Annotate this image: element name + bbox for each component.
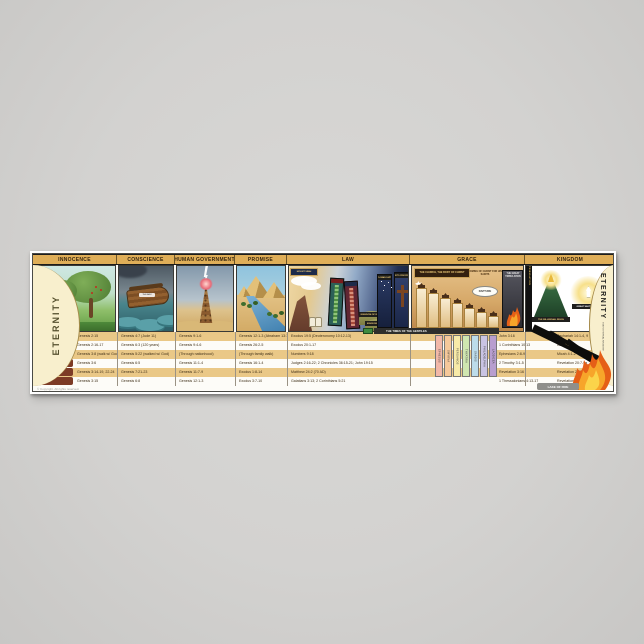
church-age-name: LAODICEA — [492, 349, 495, 364]
church-age-step — [488, 316, 499, 328]
eternity-left-text: ETERNITY — [51, 295, 61, 356]
church-age-name: EPHESUS — [438, 349, 441, 363]
church-age-name: PHILADELPHIA — [483, 346, 486, 367]
church-age-bar: EPHESUS — [435, 335, 443, 377]
header-conscience: CONSCIENCE — [117, 255, 175, 264]
cross-icon — [397, 290, 408, 293]
storm-cloud-icon — [118, 265, 147, 278]
header-grace: GRACE — [410, 255, 525, 264]
ark-label: THE ARK — [139, 293, 155, 297]
wave-icon — [157, 315, 174, 325]
ref-cell: Genesis 6:5 — [121, 359, 175, 368]
church-age-bar: PERGAMOS — [453, 335, 461, 377]
ref-cell: Genesis 3:6 — [77, 359, 117, 368]
header-innocence: INNOCENCE — [33, 255, 117, 264]
table-row: RECKONING Genesis 3:14-19, 22-24 Genesis… — [33, 368, 614, 377]
column-divider — [525, 332, 526, 386]
panel-header — [345, 282, 357, 287]
church-age-bar: PHILADELPHIA — [480, 335, 488, 377]
coming-of-christ-text: COMING OF CHRIST FOR HIS SAINTS — [468, 270, 502, 276]
ref-cell: Genesis 7:21-23 — [121, 368, 175, 377]
ark-label-text: THE ARK — [142, 294, 151, 297]
ref-cell: Genesis 9:1-6 — [179, 332, 235, 341]
scene-church-age: THE CHURCH, THE BODY OF CHRIST — [411, 265, 524, 332]
scene-noahs-ark: THE ARK — [118, 265, 174, 332]
ref-cell: Genesis 5:22 (walked w/ God) — [121, 350, 175, 359]
header-label: KINGDOM — [557, 257, 583, 263]
header-law: LAW — [287, 255, 410, 264]
church-building-icon — [442, 295, 449, 298]
tribulation-strip-text: TRIBULATION — [528, 266, 530, 285]
times-of-gentiles-bar: THE TIMES OF THE GENTILES — [374, 328, 499, 334]
ref-cell: Numbers 9:18 — [291, 350, 409, 359]
ref-cell: 2 Timothy 3:1-5 — [499, 359, 555, 368]
ref-cell: Exodus 20:1-17 — [291, 341, 409, 350]
millennial-reign-text: THE MILLENNIAL REIGN — [538, 319, 564, 321]
palm-trees-icon — [241, 302, 246, 306]
ref-cell: Matthew 24:2 (70 AD) — [291, 368, 409, 377]
ref-cell: Genesis 12:1-3 — [179, 377, 235, 386]
header-human-government: HUMAN GOVERNMENT — [175, 255, 235, 264]
stone-tablet-icon — [315, 317, 322, 327]
church-building-icon — [490, 313, 497, 316]
ref-cell: Genesis 11:7-9 — [179, 368, 235, 377]
church-banner-text: THE CHURCH, THE BODY OF CHRIST — [420, 271, 465, 274]
tribulation-strip: TRIBULATION — [526, 266, 532, 332]
rapture-label: RAPTURE — [472, 286, 498, 297]
church-age-step — [440, 298, 451, 328]
church-age-step — [428, 293, 439, 328]
column-divider — [117, 332, 118, 386]
ref-cell: Revelation 3:16 — [499, 368, 555, 377]
column-divider — [410, 332, 411, 386]
mount-sinai-label: MOUNT SINAI — [290, 268, 318, 276]
kings-column-icon — [333, 285, 339, 323]
ref-cell: Genesis 3:14-19, 22-24 — [77, 368, 117, 377]
captivity-label-text: BABYLONIAN CAPTIVITY — [378, 277, 391, 279]
header-label: CONSCIENCE — [127, 257, 163, 263]
church-age-name: THYATIRA — [465, 349, 468, 363]
table-row: RESTRICTION Genesis 2:16-17 Genesis 6:3 … — [33, 341, 614, 350]
church-age-name: PERGAMOS — [456, 348, 459, 365]
church-building-icon — [454, 300, 461, 303]
ref-cell: Exodus 3:7-10 — [239, 377, 287, 386]
timeline-marker — [363, 328, 373, 334]
scene-egypt-pyramids — [236, 265, 286, 332]
crucifixion-label-text: CHRIST'S CRUCIFIXION — [395, 275, 408, 277]
church-building-icon — [418, 285, 425, 288]
eternity-right-text: ETERNITY — [599, 273, 606, 320]
ref-cell: Judges 2:16-22; 2 Chronicles 36:15-21; J… — [291, 359, 409, 368]
column-divider — [235, 332, 236, 386]
cloud-icon — [301, 282, 321, 290]
ref-cell: Genesis 12:1-3 (Abraham 13:14-17) — [239, 332, 287, 341]
ref-cell: Genesis 4:7 (Jude 11) — [121, 332, 175, 341]
table-row: REMEDY Genesis 3:15 Genesis 6:8 Genesis … — [33, 377, 614, 386]
header-label: HUMAN GOVERNMENT — [175, 257, 235, 263]
ref-cell: Genesis 16:1-4 — [239, 359, 287, 368]
column-divider — [175, 332, 176, 386]
kings-of-judah-panel — [344, 281, 360, 330]
babylonian-captivity-panel: BABYLONIAN CAPTIVITY — [377, 274, 392, 328]
ref-cell: Genesis 2:16-17 — [77, 341, 117, 350]
ref-cell: Ephesians 2:8-9 — [499, 350, 555, 359]
dispensations-poster[interactable]: INNOCENCE CONSCIENCE HUMAN GOVERNMENT PR… — [30, 251, 616, 394]
church-age-bar: THYATIRA — [462, 335, 470, 377]
church-steeple-icon — [480, 307, 483, 309]
scene-law-era: MOUNT SINAI KINGDOM OF ISRAEL KINGDOM OF… — [288, 265, 409, 332]
ref-cell: 1 Corinthians 10:13 — [499, 341, 555, 350]
tribulation-label: THE GREAT TRIBULATION — [504, 273, 522, 279]
pyramid-icon — [263, 282, 285, 298]
header-promise: PROMISE — [235, 255, 287, 264]
mount-sinai-label-text: MOUNT SINAI — [297, 271, 311, 273]
church-age-step — [452, 303, 463, 328]
scene-tower-of-babel — [176, 265, 234, 332]
ref-cell: Genesis 2:15 — [77, 332, 117, 341]
copyright-text: © Copyright. All rights reserved. — [37, 387, 79, 391]
ref-cell: Exodus 1:8-14 — [239, 368, 287, 377]
ref-cell: Genesis 6:3 (120 years) — [121, 341, 175, 350]
church-banner: THE CHURCH, THE BODY OF CHRIST — [414, 268, 470, 278]
lake-of-fire-text: LAKE OF FIRE — [548, 385, 569, 389]
coming-text: COMING OF CHRIST FOR HIS SAINTS — [468, 270, 502, 276]
tribulation-text: THE GREAT TRIBULATION — [505, 273, 520, 278]
cross-icon — [401, 285, 404, 307]
ref-cell: Genesis 26:2-5 — [239, 341, 287, 350]
crucifixion-panel: CHRIST'S CRUCIFIXION — [394, 272, 409, 328]
ref-cell: Genesis 9:4-6 — [179, 341, 235, 350]
flames-icon — [505, 302, 522, 326]
church-building-icon — [478, 309, 485, 312]
ref-cell: Galatians 3:13; 2 Corinthians 5:21 — [291, 377, 409, 386]
ref-cell: Genesis 11:1-4 — [179, 359, 235, 368]
table-row: RESPONSIBILITY Genesis 2:15 Genesis 4:7 … — [33, 332, 614, 341]
table-row: RUIN (FAILURE) Genesis 3:6 Genesis 6:5 G… — [33, 359, 614, 368]
page-background: INNOCENCE CONSCIENCE HUMAN GOVERNMENT PR… — [0, 0, 644, 644]
ref-cell: Genesis 3:15 — [77, 377, 117, 386]
header-kingdom: KINGDOM — [525, 255, 614, 264]
church-age-step — [416, 288, 427, 328]
church-steeple-icon — [492, 311, 495, 313]
ref-cell: Genesis 3:8 (walk w/ God) — [77, 350, 117, 359]
rapture-text: RAPTURE — [479, 290, 492, 293]
column-divider — [287, 332, 288, 386]
header-label: PROMISE — [248, 257, 273, 263]
kings-of-israel-panel — [328, 278, 344, 327]
lake-of-fire-label: LAKE OF FIRE — [537, 383, 579, 390]
church-steeple-icon — [432, 288, 435, 290]
church-age-bar: SMYRNA — [444, 335, 452, 377]
millennial-reign-label: THE MILLENNIAL REIGN — [532, 317, 570, 322]
explosion-icon — [199, 278, 213, 290]
church-age-step — [476, 312, 487, 328]
stars-icon — [381, 281, 382, 282]
church-steeple-icon — [444, 293, 447, 295]
church-building-icon — [466, 305, 473, 308]
ref-cell: (Through family walk) — [239, 350, 287, 359]
church-ages-group: EPHESUS SMYRNA PERGAMOS THYATIRA SARDIS … — [435, 335, 499, 377]
church-building-icon — [430, 290, 437, 293]
church-steeple-icon — [468, 303, 471, 305]
crucifixion-label: CHRIST'S CRUCIFIXION — [395, 273, 408, 278]
church-steeple-icon — [456, 298, 459, 300]
palm-trees-icon — [267, 312, 272, 316]
table-row: RELATIONSHIP Genesis 3:8 (walk w/ God) G… — [33, 350, 614, 359]
captivity-label: BABYLONIAN CAPTIVITY — [378, 275, 391, 280]
header-label: LAW — [342, 257, 354, 263]
timeline-chart: INNOCENCE CONSCIENCE HUMAN GOVERNMENT PR… — [32, 253, 614, 392]
header-label: GRACE — [457, 257, 477, 263]
times-of-gentiles-text: THE TIMES OF THE GENTILES — [386, 329, 427, 333]
tribulation-panel: THE GREAT TRIBULATION — [502, 270, 523, 328]
tree-trunk-icon — [89, 298, 93, 318]
panel-header — [331, 279, 343, 284]
fruit-icon — [95, 286, 97, 288]
church-age-step — [464, 308, 475, 328]
ref-cell: (Through nationhood) — [179, 350, 235, 359]
kings-column-icon — [349, 288, 355, 326]
ref-cell: Genesis 6:8 — [121, 377, 175, 386]
header-label: INNOCENCE — [58, 257, 91, 263]
church-age-name: SARDIS — [474, 351, 477, 362]
church-age-bar: LAODICEA — [489, 335, 497, 377]
church-age-bar: SARDIS — [471, 335, 479, 377]
column-header-bar: INNOCENCE CONSCIENCE HUMAN GOVERNMENT PR… — [33, 254, 614, 265]
church-age-name: SMYRNA — [447, 350, 450, 362]
